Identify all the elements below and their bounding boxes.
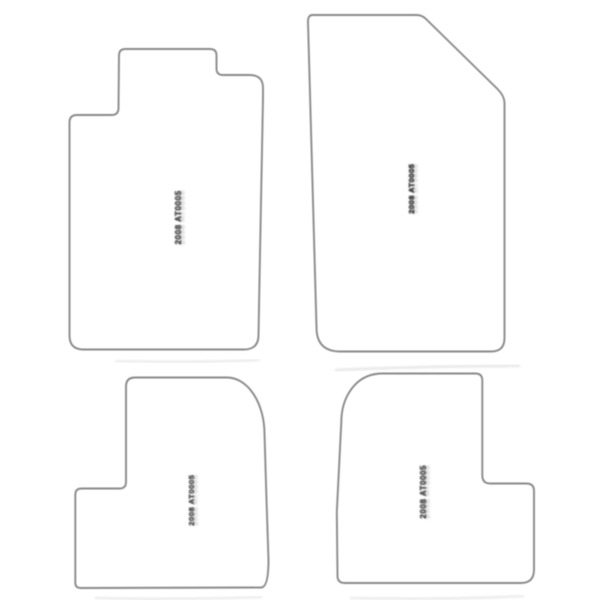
- svg-text:2008 AT0005: 2008 AT0005: [187, 474, 196, 525]
- svg-text:2008 AT0005: 2008 AT0005: [419, 465, 428, 519]
- svg-text:2008 AT0005: 2008 AT0005: [174, 190, 183, 244]
- svg-text:2008 AT0005: 2008 AT0005: [407, 163, 416, 213]
